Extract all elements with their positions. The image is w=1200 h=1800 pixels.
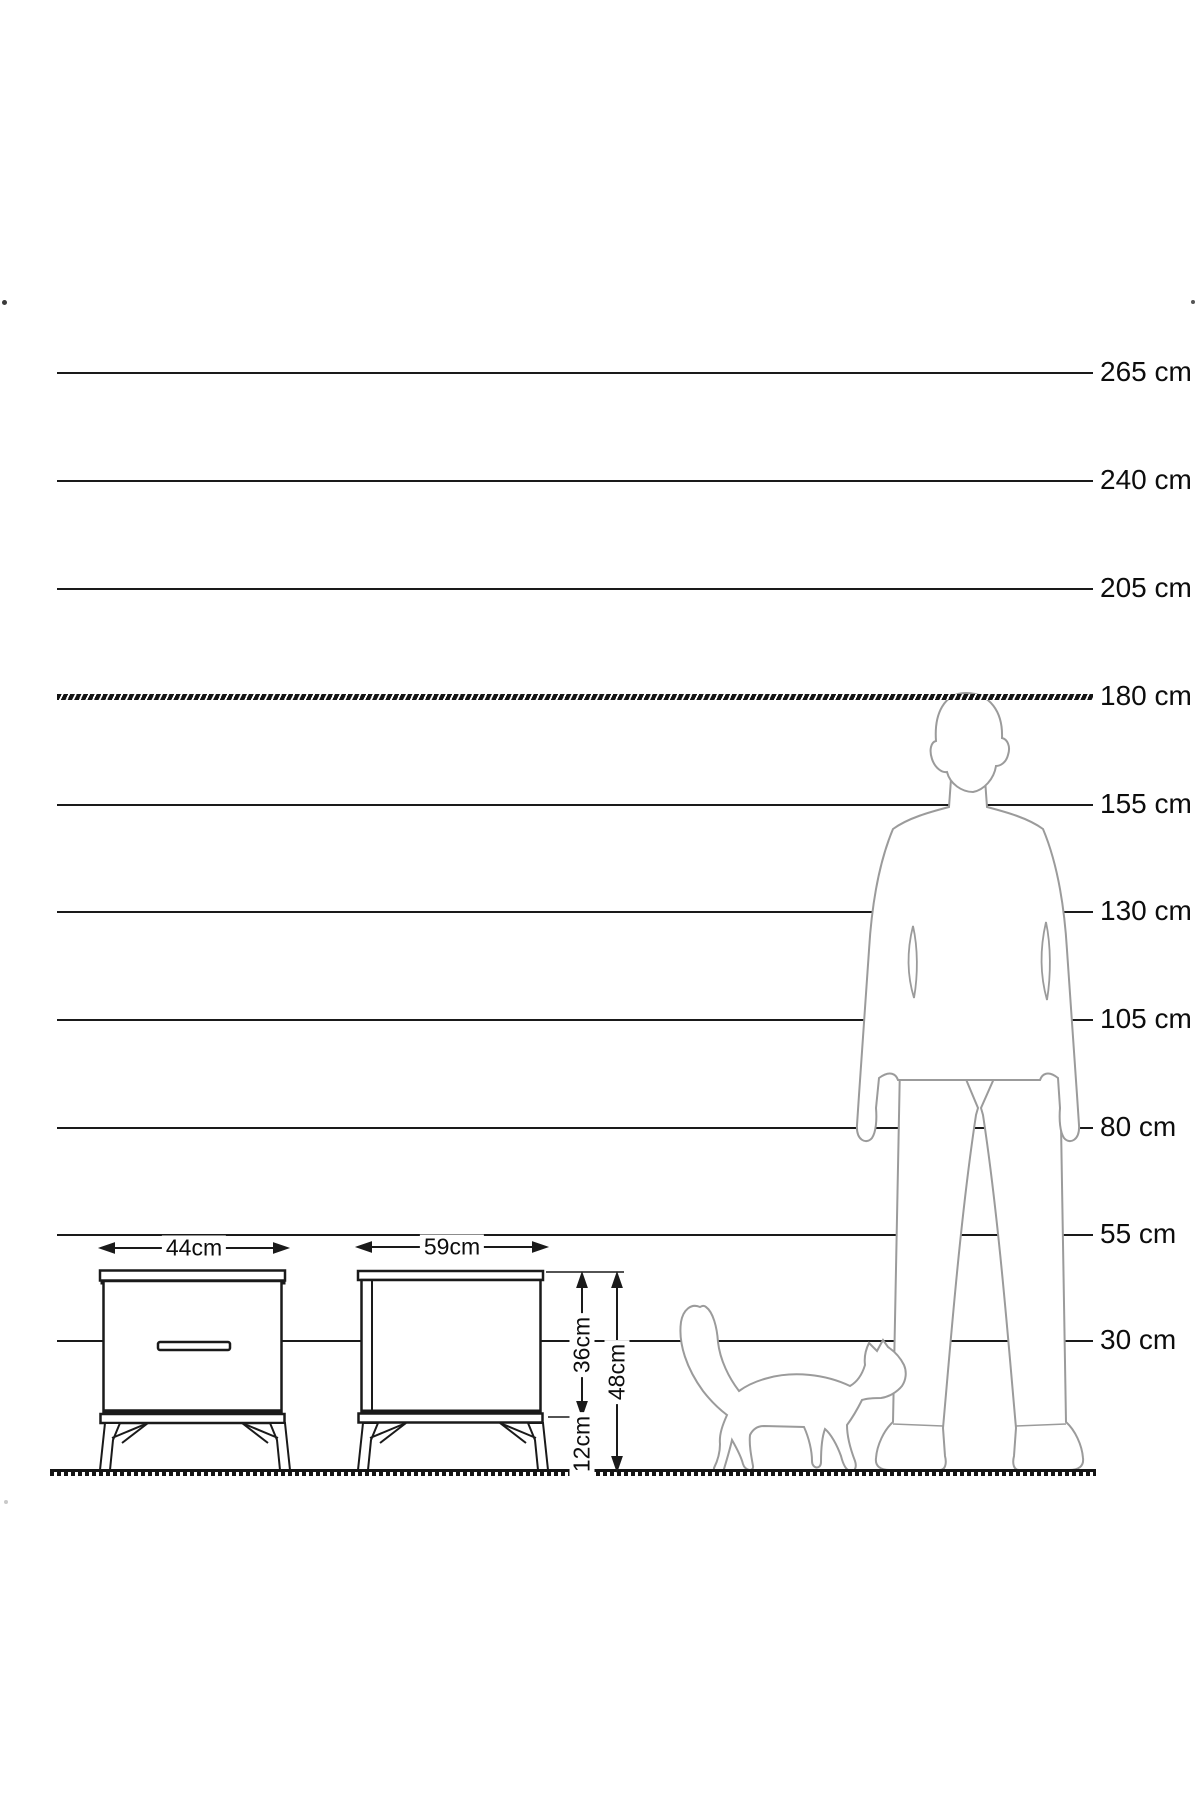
front-left-leg (100, 1423, 120, 1470)
side-left-leg (358, 1423, 378, 1470)
man-left-leg (876, 1065, 978, 1470)
scale-label-130: 130 cm (1100, 897, 1192, 925)
artifact-speck (2, 300, 7, 305)
scale-line-130 (57, 911, 1093, 913)
artifact-speck (1191, 300, 1195, 304)
scale-line-80 (57, 1127, 1093, 1129)
scale-label-240: 240 cm (1100, 466, 1192, 494)
scale-line-240 (57, 480, 1093, 482)
nightstand-front-view (97, 1266, 293, 1476)
man-jacket (857, 779, 1079, 1141)
scale-label-30: 30 cm (1100, 1326, 1176, 1354)
scale-label-205: 205 cm (1100, 574, 1192, 602)
front-right-leg (270, 1423, 290, 1470)
leg-height-label: 12cm (570, 1412, 595, 1476)
side-width-label: 59cm (420, 1235, 484, 1260)
cat-silhouette (0, 0, 1200, 1800)
man-head (931, 693, 1009, 792)
scale-line-180-emphasized (57, 694, 1093, 700)
nightstand-side-view (355, 1266, 551, 1476)
scale-label-155: 155 cm (1100, 790, 1192, 818)
scale-line-205 (57, 588, 1093, 590)
man-jacket-slit-left (909, 926, 917, 998)
man-silhouette (0, 0, 1200, 1800)
scale-line-155 (57, 804, 1093, 806)
artifact-speck (4, 1500, 8, 1504)
body-height-label: 36cm (570, 1313, 595, 1377)
total-height-label: 48cm (605, 1340, 630, 1404)
scale-label-105: 105 cm (1100, 1005, 1192, 1033)
front-width-label: 44cm (162, 1236, 226, 1261)
scale-line-265 (57, 372, 1093, 374)
dimension-lines (0, 0, 1200, 1800)
cat-body (680, 1306, 905, 1472)
size-comparison-diagram: 44cm 59cm 36cm 12cm 48cm 265 cm 240 cm 2… (0, 0, 1200, 1800)
scale-label-55: 55 cm (1100, 1220, 1176, 1248)
drawer-handle (158, 1342, 230, 1350)
side-right-leg (528, 1423, 548, 1470)
scale-label-180: 180 cm (1100, 682, 1192, 710)
scale-line-105 (57, 1019, 1093, 1021)
scale-label-265: 265 cm (1100, 358, 1192, 386)
man-jacket-slit-right (1042, 922, 1050, 1000)
scale-label-80: 80 cm (1100, 1113, 1176, 1141)
man-right-leg (981, 1065, 1083, 1470)
